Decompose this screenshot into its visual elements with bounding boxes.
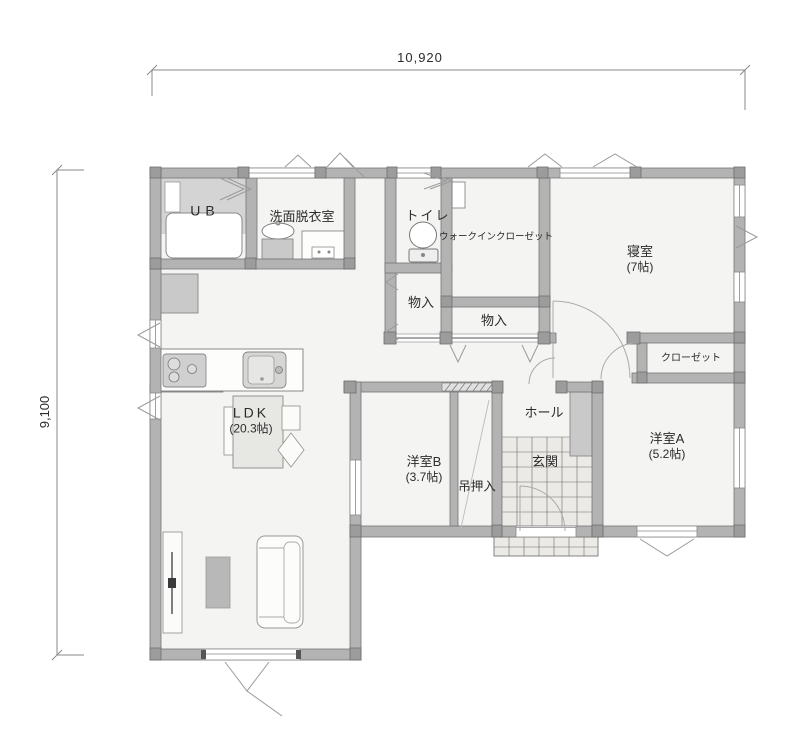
floor-plan-drawing — [0, 0, 800, 739]
floor-plan-canvas: UB 洗面脱衣室 トイレ ウォークインクローゼット 寝室(7帖) 物入 物入 ク… — [0, 0, 800, 739]
room-label-storage-2: 物入 — [481, 313, 507, 329]
room-label-western-room-a: 洋室A(5.2帖) — [649, 431, 686, 461]
room-label-ldk: LDK(20.3帖) — [229, 404, 272, 435]
entrance-porch — [494, 537, 598, 556]
dimension-width-label: 10,920 — [397, 50, 443, 66]
room-label-hall: ホール — [524, 405, 563, 421]
pipe-space — [452, 182, 465, 208]
room-label-walk-in-closet: ウォークインクローゼット — [439, 231, 553, 242]
room-label-western-room-b: 洋室B(3.7帖) — [406, 454, 443, 484]
shoe-cabinet — [570, 392, 592, 456]
room-label-storage-1: 物入 — [408, 295, 434, 311]
bathtub — [166, 213, 242, 258]
dimension-height-label: 9,100 — [37, 396, 53, 429]
rug — [206, 557, 230, 608]
room-label-bedroom: 寝室(7帖) — [627, 244, 654, 274]
room-label-closet: クローゼット — [661, 353, 721, 365]
washing-machine — [262, 239, 293, 259]
refrigerator — [160, 274, 198, 313]
room-label-toilet: トイレ — [405, 208, 450, 224]
bath-niche — [165, 182, 180, 212]
room-label-hanging-closet: 吊押入 — [458, 480, 496, 495]
room-label-washroom: 洗面脱衣室 — [269, 209, 334, 225]
kitchen-counter — [150, 349, 303, 392]
dining-chair — [282, 406, 300, 430]
room-label-entrance: 玄関 — [532, 454, 558, 470]
stove — [163, 354, 206, 387]
room-label-ub: UB — [190, 203, 219, 220]
